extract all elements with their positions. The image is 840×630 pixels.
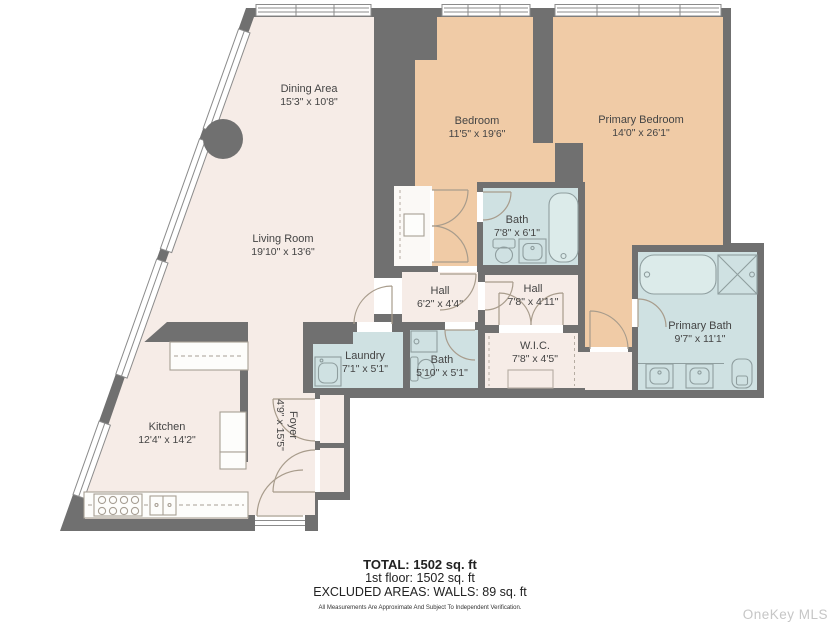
excluded-area: EXCLUDED AREAS: WALLS: 89 sq. ft — [0, 586, 840, 599]
bathtub-icon — [640, 255, 716, 294]
room-wic — [485, 333, 578, 388]
room-vestibule — [585, 352, 632, 390]
fridge-icon — [220, 412, 246, 452]
foyer-closet-1 — [320, 395, 344, 443]
foyer-closet-2 — [320, 448, 344, 492]
closet-shelf — [404, 214, 424, 236]
floor-plan-drawing — [0, 0, 840, 630]
stove-icon — [94, 494, 142, 516]
summary-block: TOTAL: 1502 sq. ft 1st floor: 1502 sq. f… — [0, 558, 840, 611]
room-hall-west — [402, 272, 478, 322]
laundry-corner-wall — [313, 322, 353, 344]
disclaimer: All Measurements Are Approximate And Sub… — [0, 605, 840, 611]
bathtub-icon — [549, 193, 578, 262]
floor-plan-page: Dining Area15'3" x 10'8"Living Room19'10… — [0, 0, 840, 630]
floor-area: 1st floor: 1502 sq. ft — [0, 572, 840, 585]
structural-column — [203, 119, 243, 159]
total-area: TOTAL: 1502 sq. ft — [0, 558, 840, 572]
watermark: OneKey MLS — [743, 607, 828, 622]
